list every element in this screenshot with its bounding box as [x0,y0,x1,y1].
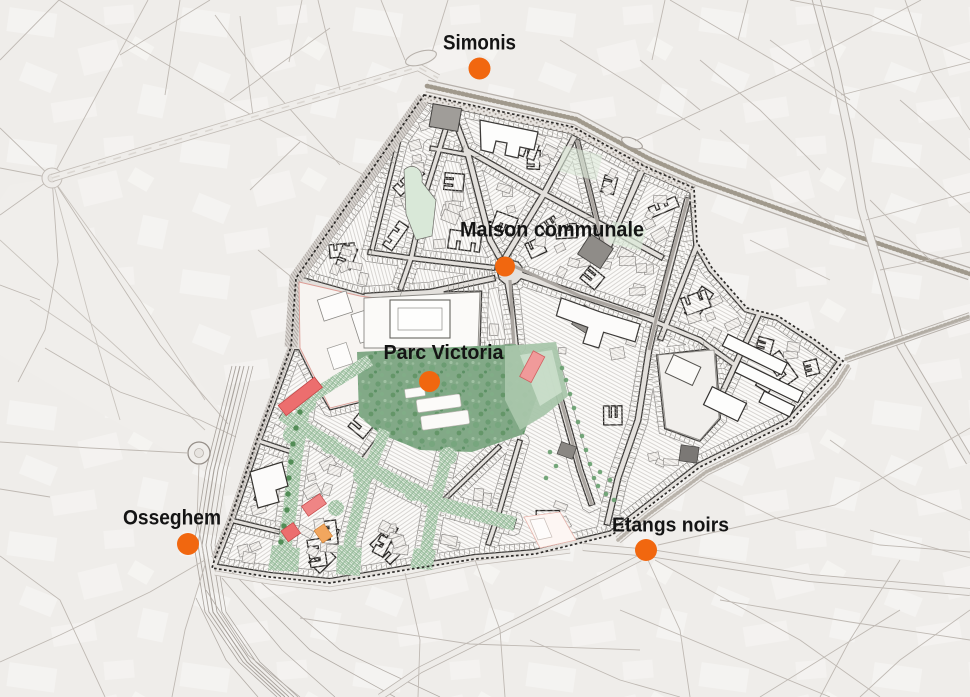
svg-text:Osseghem: Osseghem [123,507,221,530]
svg-text:Simonis: Simonis [443,32,516,55]
svg-text:Maison communale: Maison communale [460,218,644,242]
svg-text:Etangs noirs: Etangs noirs [612,514,729,537]
svg-text:Parc Victoria: Parc Victoria [384,341,505,364]
